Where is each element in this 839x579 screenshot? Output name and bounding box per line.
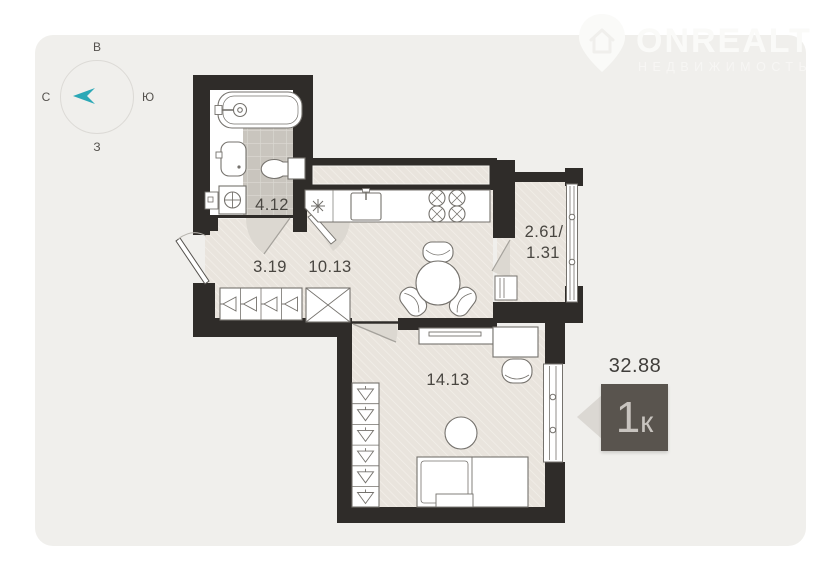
glazing-handle — [569, 214, 575, 220]
floor-plan: 4.12 3.19 10.13 2.61/ 1.31 14.13 — [0, 0, 839, 579]
sink-tap — [216, 152, 222, 158]
window-handle — [550, 394, 556, 400]
room-label-bathroom: 4.12 — [255, 196, 289, 214]
badge-arrow-icon — [577, 395, 602, 439]
page: В Ю З С ONREALT НЕДВИЖИМОСТЬ — [0, 0, 839, 579]
toilet-bowl — [261, 160, 288, 179]
kitchen-fixtures — [305, 189, 490, 223]
flat-type-letter: к — [640, 408, 653, 438]
utility-box-inner — [208, 197, 213, 202]
kitchen-faucet-base — [363, 189, 370, 193]
wall-right-upper — [545, 323, 565, 364]
pouf — [445, 417, 477, 449]
wall-balcony-top — [497, 172, 567, 182]
balcony-glazing — [567, 184, 578, 302]
wall-left-upper — [193, 75, 210, 235]
bathroom-sink — [221, 142, 246, 176]
entrance-door-leaf — [176, 238, 209, 284]
wall-right-lower — [545, 462, 565, 523]
brand-name: ONREALT — [636, 22, 812, 61]
bathtub-drain-dot — [238, 108, 243, 113]
bathtub-mixer — [215, 106, 222, 115]
total-area-label: 32.88 — [600, 355, 670, 378]
toilet-tank — [288, 158, 305, 179]
room-label-hallway: 3.19 — [253, 258, 287, 276]
balcony-sill-unit — [495, 276, 517, 300]
entrance-door-swing — [178, 233, 206, 239]
sofa-seat — [436, 494, 473, 507]
room-label-balcony-line2: 1.31 — [526, 244, 560, 262]
room-label-balcony-line1: 2.61/ — [525, 223, 564, 241]
flat-type-badge[interactable]: 1 к — [601, 384, 668, 451]
kitchen-top-duct — [313, 166, 489, 184]
wall-balcony-left — [493, 160, 515, 238]
brand-pin-icon — [576, 12, 628, 74]
wall-bathroom-bottom-stub — [193, 215, 218, 231]
living-window — [544, 364, 563, 462]
wall-living-left — [337, 318, 352, 523]
dining-table — [416, 261, 460, 305]
wall-living-bottom — [337, 507, 565, 523]
vent-star-icon — [311, 199, 325, 213]
brand-subtitle: НЕДВИЖИМОСТЬ — [638, 60, 812, 74]
desk — [493, 327, 538, 357]
room-label-kitchen: 10.13 — [308, 258, 351, 276]
glazing-handle — [569, 259, 575, 265]
room-label-living: 14.13 — [426, 371, 469, 389]
desk-chair — [502, 359, 532, 383]
wall-balcony-corner-top — [565, 168, 583, 186]
dining-chair — [423, 242, 453, 262]
window-handle — [550, 427, 556, 433]
flat-type-number: 1 — [616, 396, 640, 440]
hallway-storage — [220, 288, 350, 322]
tv — [429, 332, 481, 336]
sink-drain-dot — [237, 165, 240, 168]
